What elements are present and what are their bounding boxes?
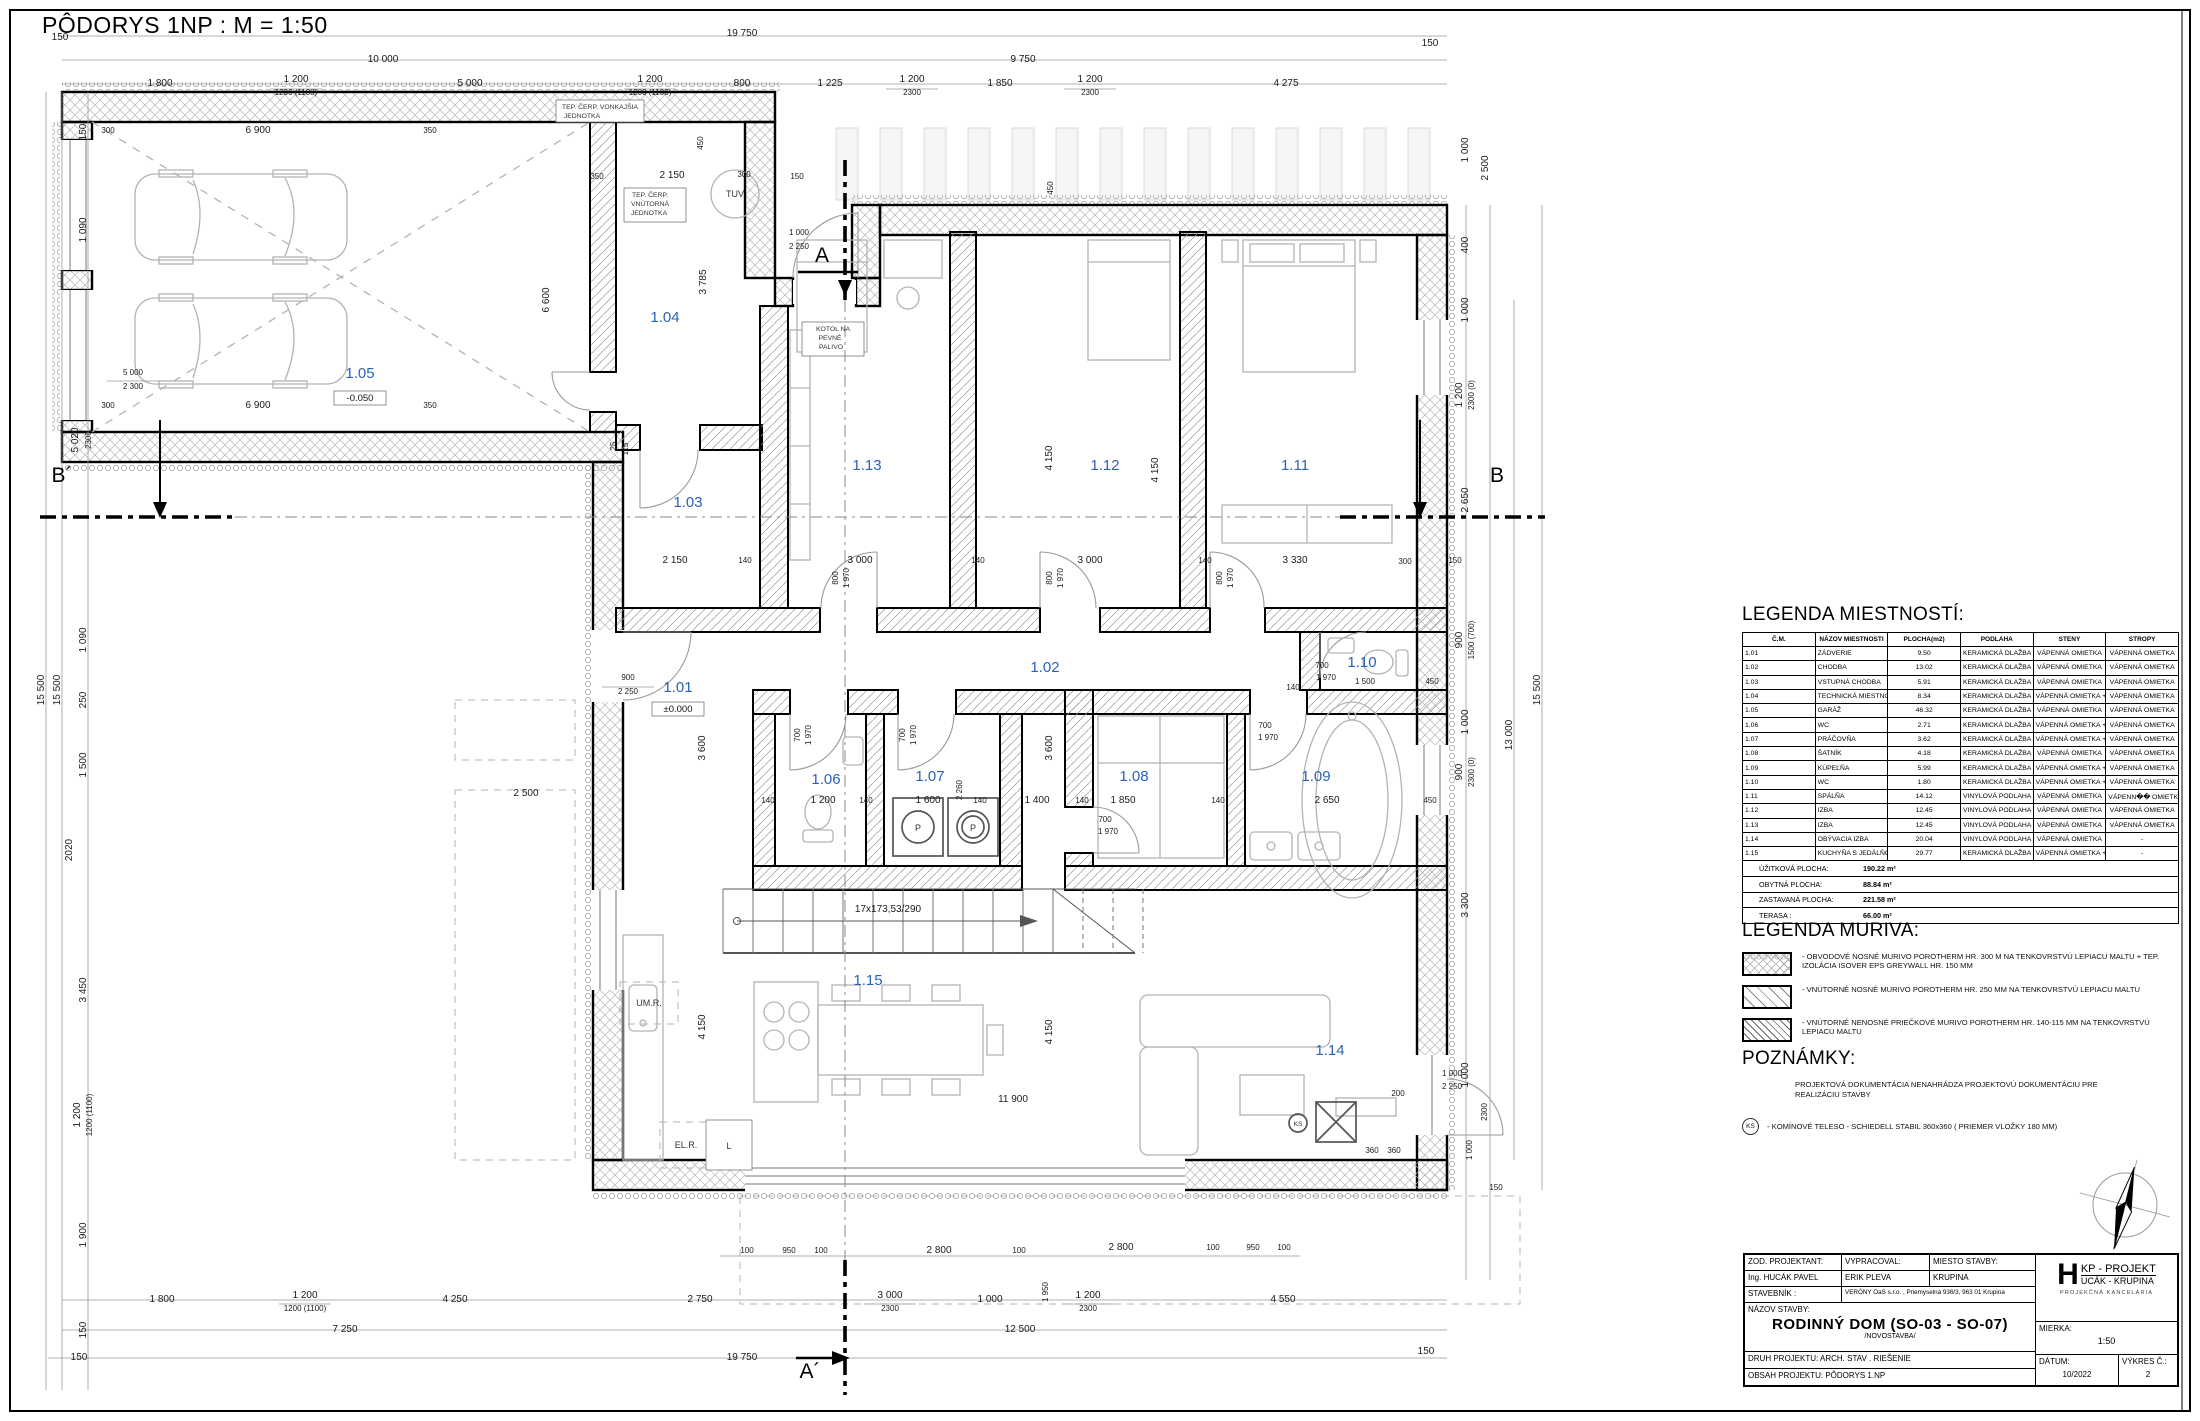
stavebnik-value: VERÓNY OaS s.r.o. , Priemyselná 936/3, 9… <box>1842 1287 2035 1302</box>
dim-label: 200 <box>1391 1089 1405 1098</box>
legend-cell: VÁPENNÁ OMIETKA <box>2106 661 2179 675</box>
legend-cell: KERAMICKÁ DLAŽBA <box>1960 704 2033 718</box>
dim-label: PALIVO <box>819 344 843 351</box>
dim-label: 140 <box>1198 556 1212 565</box>
partition-wall-swatch <box>1742 1018 1792 1042</box>
wall-legend-text: - OBVODOVÉ NOSNÉ MURIVO POROTHERM HR. 30… <box>1802 952 2174 976</box>
dim-label: 1 970 <box>842 567 851 588</box>
legend-cell: KERAMICKÁ DLAŽBA <box>1960 747 2033 761</box>
wall-legend-item: - VNÚTORNÉ NENOSNÉ PRIEČKOVÉ MURIVO PORO… <box>1742 1018 2180 1042</box>
zod-label: ZOD. PROJEKTANT: <box>1745 1255 1842 1270</box>
datum-value: 10/2022 <box>2039 1370 2115 1379</box>
dim-label: 360 <box>1387 1146 1401 1155</box>
dim-label: 250 <box>78 691 89 708</box>
legend-cell: OBÝVACIA IZBA <box>1815 832 1888 846</box>
legend-cell: 12.45 <box>1888 804 1961 818</box>
dim-label: 9 750 <box>1010 54 1035 65</box>
legend-row: 1.08ŠATNÍK4.18KERAMICKÁ DLAŽBAVÁPENNÁ OM… <box>1743 747 2179 761</box>
note-text: PROJEKTOVÁ DOKUMENTÁCIA NENAHRÁDZA PROJE… <box>1795 1080 2125 1100</box>
legend-header-cell: STENY <box>2033 633 2106 647</box>
legend-cell: 46.32 <box>1888 704 1961 718</box>
dim-label: 150 <box>790 172 804 181</box>
dim-label: 1 200 <box>283 74 308 85</box>
legend-row: 1.01ZÁDVERIE9.50KERAMICKÁ DLAŽBAVÁPENNÁ … <box>1743 647 2179 661</box>
stavebnik-label: STAVEBNÍK : <box>1745 1287 1842 1302</box>
dim-label: 2 250 <box>1442 1082 1463 1091</box>
room-label: 1.02 <box>1030 659 1059 676</box>
total-value: 190.22 m² <box>1863 864 1896 873</box>
legend-cell: - <box>2106 847 2179 861</box>
dim-label: 3 330 <box>1282 555 1307 566</box>
dim-label: 15 500 <box>36 674 47 705</box>
car <box>135 294 347 388</box>
dim-label: 300 <box>101 401 115 410</box>
dim-label: 2 250 <box>789 242 810 251</box>
dim-label: 1 200 <box>72 1102 83 1127</box>
dim-label: 2 500 <box>1480 155 1491 180</box>
dim-label: 450 <box>1423 796 1437 805</box>
dim-label: TEP. ČERP. VONKAJŠIA <box>562 102 639 111</box>
dim-label: 1 200 <box>1454 382 1465 407</box>
wall-legend-text: - VNÚTORNÉ NENOSNÉ PRIEČKOVÉ MURIVO PORO… <box>1802 1018 2174 1042</box>
project-name: RODINNÝ DOM (SO-03 - SO-07) <box>1745 1316 2035 1333</box>
legend-cell: VÁPENNÁ OMIETKA <box>2106 818 2179 832</box>
legend-header-row: Č.M.NÁZOV MIESTNOSTIPLOCHA(m2)PODLAHASTE… <box>1743 633 2179 647</box>
vyp-value: ERIK PLEVA <box>1842 1271 1930 1286</box>
dim-label: 1 800 <box>147 78 172 89</box>
legend-cell: 1.11 <box>1743 789 1816 803</box>
dim-label: 1 200 <box>810 795 835 806</box>
legend-cell: 4.18 <box>1888 747 1961 761</box>
dim-label: 4 150 <box>1044 445 1055 470</box>
room-label: 1.13 <box>852 457 881 474</box>
legend-cell: KERAMICKÁ DLAŽBA <box>1960 661 2033 675</box>
dim-label: 3 785 <box>698 269 709 294</box>
dim-label: 1 970 <box>1056 567 1065 588</box>
room-label: 1.04 <box>650 309 679 326</box>
legend-cell: KERAMICKÁ DLAŽBA <box>1960 847 2033 861</box>
zod-value: Ing. HUCÁK PAVEL <box>1745 1271 1842 1286</box>
dim-label: 2300 <box>881 1304 899 1313</box>
legend-cell: VÁPENNÁ OMIETKA <box>2106 761 2179 775</box>
dim-label: VNÚTORNÁ <box>631 199 669 208</box>
dim-label: 4 250 <box>442 1294 467 1305</box>
legend-cell: 2.71 <box>1888 718 1961 732</box>
legend-row: 1.13IZBA12.45VINYLOVÁ PODLAHAVÁPENNÁ OMI… <box>1743 818 2179 832</box>
legend-cell: 5.99 <box>1888 761 1961 775</box>
legend-cell: ŠATNÍK <box>1815 747 1888 761</box>
dim-label: -0.050 <box>347 393 374 404</box>
dim-label: 140 <box>738 556 752 565</box>
legend-cell: WC <box>1815 775 1888 789</box>
dim-label: 1 600 <box>915 795 940 806</box>
vyp-label: VYPRACOVAL: <box>1842 1255 1930 1270</box>
dim-label: 1 900 <box>78 1222 89 1247</box>
legend-cell: 1.12 <box>1743 804 1816 818</box>
legend-cell: 1.01 <box>1743 647 1816 661</box>
dim-label: 2 150 <box>659 170 684 181</box>
druh-projektu: DRUH PROJEKTU: ARCH. STAV . RIEŠENIE <box>1745 1352 2035 1368</box>
legend-cell: KERAMICKÁ DLAŽBA <box>1960 761 2033 775</box>
dim-label: 100 <box>740 1246 754 1255</box>
legend-totals: ÚŽITKOVÁ PLOCHA:190.22 m²OBYTNÁ PLOCHA:8… <box>1742 861 2179 923</box>
pergola-slats <box>836 128 1430 200</box>
dim-label: 150 <box>1448 556 1462 565</box>
dim-label: 1 800 <box>149 1294 174 1305</box>
room-label: 1.15 <box>853 972 882 989</box>
notes-body: PROJEKTOVÁ DOKUMENTÁCIA NENAHRÁDZA PROJE… <box>1795 1080 2125 1100</box>
dim-label: 1 200 <box>637 74 662 85</box>
dim-label: 1 000 <box>977 1294 1002 1305</box>
dim-label: 7 250 <box>332 1324 357 1335</box>
dim-label: 13 000 <box>1504 719 1515 750</box>
dim-label: UM.R. <box>636 998 662 1008</box>
dim-label: 350 <box>423 126 437 135</box>
dim-label: 360 <box>1365 1146 1379 1155</box>
legend-cell: VÁPENNÁ OMIETKA <box>2106 647 2179 661</box>
dim-label: 1 970 <box>1226 567 1235 588</box>
dim-label: 300 <box>737 170 751 179</box>
dim-label: 700 <box>1258 721 1272 730</box>
dim-label: 1 950 <box>1041 1281 1050 1302</box>
legend-header-cell: PLOCHA(m2) <box>1888 633 1961 647</box>
room-label: 1.14 <box>1315 1042 1344 1059</box>
total-value: 66.00 m² <box>1863 911 1892 920</box>
dim-label: 100 <box>1206 1243 1220 1252</box>
legend-cell: 3.62 <box>1888 732 1961 746</box>
dim-label: 12 500 <box>1005 1324 1036 1335</box>
legend-cell: 1.13 <box>1743 818 1816 832</box>
dim-label: 140 <box>1075 796 1089 805</box>
legend-cell: VÁPENNÁ OMIETKA <box>2033 818 2106 832</box>
legend-cell: VÁPENN�� OMIETKA <box>2106 789 2179 803</box>
room-label: 1.06 <box>811 771 840 788</box>
legend-cell: VSTUPNÁ CHODBA <box>1815 675 1888 689</box>
dim-label: 1 970 <box>1316 673 1337 682</box>
dim-label: 3 600 <box>1044 735 1055 760</box>
dim-label: 140 <box>971 556 985 565</box>
legend-cell: 9.50 <box>1888 647 1961 661</box>
room-label: 1.10 <box>1347 654 1376 671</box>
legend-cell: 1.15 <box>1743 847 1816 861</box>
legend-cell: SPÁLŇA <box>1815 789 1888 803</box>
legend-cell: KERAMICKÁ DLAŽBA <box>1960 675 2033 689</box>
legend-cell: KERAMICKÁ DLAŽBA <box>1960 718 2033 732</box>
dim-label: 950 <box>1246 1243 1260 1252</box>
legend-cell: WC <box>1815 718 1888 732</box>
dim-label: 1 200 <box>1077 74 1102 85</box>
legend-cell: 1.06 <box>1743 718 1816 732</box>
dim-label: 1 500 <box>1355 677 1376 686</box>
legend-row: 1.12IZBA12.45VINYLOVÁ PODLAHAVÁPENNÁ OMI… <box>1743 804 2179 818</box>
dim-label: 1 970 <box>1258 733 1279 742</box>
legend-cell: 29.77 <box>1888 847 1961 861</box>
dim-label: 2300 (0) <box>1467 757 1476 787</box>
legend-cell: VÁPENNÁ OMIETKA + OBKLAD <box>2033 761 2106 775</box>
room-label: 1.01 <box>663 679 692 696</box>
legend-rooms-title: LEGENDA MIESTNOSTÍ: <box>1742 604 1964 626</box>
dim-label: 19 750 <box>727 1352 758 1363</box>
logo-line1: KP - PROJEKT <box>2081 1263 2156 1276</box>
dim-label: 140 <box>1286 683 1300 692</box>
datum-label: DÁTUM: <box>2039 1357 2070 1366</box>
dim-label: 10 000 <box>368 54 399 65</box>
legend-row: 1.02CHODBA13.02KERAMICKÁ DLAŽBAVÁPENNÁ O… <box>1743 661 2179 675</box>
legend-cell: VÁPENNÁ OMIETKA <box>2106 732 2179 746</box>
section-marker-label: A <box>815 244 829 267</box>
dim-label: 800 <box>734 78 751 89</box>
legend-cell: 1.14 <box>1743 832 1816 846</box>
dim-label: 1 000 <box>1465 1139 1474 1160</box>
dim-label: 140 <box>1211 796 1225 805</box>
legend-cell: TECHNICKÁ MIESTNOSŤ <box>1815 689 1888 703</box>
legend-cell: VÁPENNÁ OMIETKA <box>2106 804 2179 818</box>
legend-cell: 20.04 <box>1888 832 1961 846</box>
dim-label: 1 000 <box>1460 297 1471 322</box>
dim-label: 1 970 <box>909 724 918 745</box>
dim-label: 2 250 <box>618 687 639 696</box>
dim-label: 300 <box>1398 557 1412 566</box>
dim-label: 700 <box>1315 661 1329 670</box>
dim-label: 1 000 <box>1460 137 1471 162</box>
dim-label: 2 750 <box>687 1294 712 1305</box>
legend-cell: 1.07 <box>1743 732 1816 746</box>
legend-cell: VÁPENNÁ OMIETKA <box>2106 675 2179 689</box>
total-label: ÚŽITKOVÁ PLOCHA: <box>1743 864 1863 873</box>
legend-rooms-heading: LEGENDA MIESTNOSTÍ: <box>1742 604 1964 626</box>
dim-label: 800 <box>1045 571 1054 585</box>
legend-cell: VÁPENNÁ OMIETKA + OBKLAD <box>2033 732 2106 746</box>
dim-label: 6 900 <box>245 400 270 411</box>
legend-header-cell: Č.M. <box>1743 633 1816 647</box>
dim-label: 2300 <box>1081 88 1099 97</box>
dim-label: TEP. ČERP. <box>632 190 668 199</box>
mierka-value: 1:50 <box>2039 1336 2174 1346</box>
dim-label: 800 <box>1215 571 1224 585</box>
dim-label: 25 <box>609 441 618 450</box>
dim-label: 800 <box>831 571 840 585</box>
legend-cell: KERAMICKÁ DLAŽBA <box>1960 775 2033 789</box>
ks-note-text: - KOMÍNOVÉ TELESO - SCHIEDELL STABIL 360… <box>1767 1122 2057 1131</box>
dim-label: PEVNÉ <box>818 333 842 342</box>
legend-cell: KUCHYŇA S JEDÁLŇOU <box>1815 847 1888 861</box>
room-label: 1.05 <box>345 365 374 382</box>
section-marker-label: B´ <box>52 464 73 487</box>
dim-label: 3 450 <box>78 977 89 1002</box>
dim-label: 5 020 <box>70 427 81 452</box>
legend-row: 1.15KUCHYŇA S JEDÁLŇOU29.77KERAMICKÁ DLA… <box>1743 847 2179 861</box>
legend-row: 1.07PRÁČOVŇA3.62KERAMICKÁ DLAŽBAVÁPENNÁ … <box>1743 732 2179 746</box>
total-label: ZASTAVANÁ PLOCHA: <box>1743 895 1863 904</box>
dim-label: JEDNOTKA <box>631 210 668 217</box>
dim-label: 450 <box>696 136 705 150</box>
legend-cell: VÁPENNÁ OMIETKA + OBKLAD <box>2033 775 2106 789</box>
dim-label: 4 150 <box>1150 457 1161 482</box>
legend-cell: 1.09 <box>1743 761 1816 775</box>
dim-label: 2 650 <box>1314 795 1339 806</box>
legend-cell: VINYLOVÁ PODLAHA <box>1960 789 2033 803</box>
dim-label: 350 <box>423 401 437 410</box>
dim-label: 3 000 <box>847 555 872 566</box>
wall-legend-item: - OBVODOVÉ NOSNÉ MURIVO POROTHERM HR. 30… <box>1742 952 2180 976</box>
total-label: TERASA : <box>1743 911 1863 920</box>
dim-label: 19 750 <box>727 28 758 39</box>
dim-label: 2300 <box>1079 1304 1097 1313</box>
room-label: 1.09 <box>1301 768 1330 785</box>
dim-label: 3 000 <box>1077 555 1102 566</box>
legend-row: 1.06WC2.71KERAMICKÁ DLAŽBAVÁPENNÁ OMIETK… <box>1743 718 2179 732</box>
legend-cell: 5.91 <box>1888 675 1961 689</box>
legend-rooms-table: Č.M.NÁZOV MIESTNOSTIPLOCHA(m2)PODLAHASTE… <box>1742 632 2179 861</box>
dim-label: 900 <box>1454 631 1465 648</box>
page-title: PÔDORYS 1NP : M = 1:50 <box>42 12 328 39</box>
dim-label: 2 500 <box>513 788 538 799</box>
dim-label: 1 500 <box>78 752 89 777</box>
legend-cell: VINYLOVÁ PODLAHA <box>1960 818 2033 832</box>
exterior-wall-swatch <box>1742 952 1792 976</box>
doors <box>552 212 1503 1135</box>
dim-label: 15 500 <box>1532 674 1543 705</box>
dim-label: 1 200 <box>1075 1290 1100 1301</box>
dim-label: 2300 (0) <box>1467 380 1476 410</box>
obsah-projektu: OBSAH PROJEKTU: PÔDORYS 1.NP <box>1745 1369 2035 1385</box>
section-marker-label: B <box>1490 464 1504 487</box>
dim-label: 1 000 <box>1460 709 1471 734</box>
legend-cell: PRÁČOVŇA <box>1815 732 1888 746</box>
wall-legend-item: - VNÚTORNÉ NOSNÉ MURIVO POROTHERM HR. 25… <box>1742 985 2180 1009</box>
legend-walls: - OBVODOVÉ NOSNÉ MURIVO POROTHERM HR. 30… <box>1742 952 2180 1051</box>
dim-label: 140 <box>859 796 873 805</box>
legend-cell: 1.80 <box>1888 775 1961 789</box>
dim-label: 150 <box>71 1352 88 1363</box>
dim-label: 2 800 <box>1108 1242 1133 1253</box>
legend-cell: VINYLOVÁ PODLAHA <box>1960 804 2033 818</box>
dim-label: 3 300 <box>1460 892 1471 917</box>
wall-legend-text: - VNÚTORNÉ NOSNÉ MURIVO POROTHERM HR. 25… <box>1802 985 2174 1009</box>
dim-label: 150 <box>1418 1346 1435 1357</box>
dim-label: 400 <box>1460 236 1471 253</box>
dim-label: P <box>915 823 921 833</box>
legend-cell: VÁPENNÁ OMIETKA + OBKLAD <box>2033 718 2106 732</box>
logo-h: H <box>2057 1263 2079 1287</box>
legend-cell: VÁPENNÁ OMIETKA + OBKLAD <box>2033 847 2106 861</box>
legend-cell: 1.02 <box>1743 661 1816 675</box>
dim-label: 1 200 <box>899 74 924 85</box>
dim-label: 1200 (1100) <box>275 88 318 97</box>
legend-cell: IZBA <box>1815 818 1888 832</box>
dim-label: 150 <box>78 1321 89 1338</box>
dim-label: 140 <box>973 796 987 805</box>
legend-cell: VÁPENNÁ OMIETKA <box>2033 804 2106 818</box>
dim-label: 1200 (1100) <box>284 1304 327 1313</box>
legend-header-cell: STROPY <box>2106 633 2179 647</box>
legend-cell: 14.12 <box>1888 789 1961 803</box>
legend-cell: KÚPEĽŇA <box>1815 761 1888 775</box>
logo-line2: UCÁK - KRUPINA <box>2081 1276 2156 1286</box>
dim-label: 450 <box>1425 677 1439 686</box>
legend-cell: VÁPENNÁ OMIETKA <box>2106 775 2179 789</box>
dim-label: 2300 <box>903 88 921 97</box>
dim-label: L <box>726 1141 731 1151</box>
legend-row: 1.05GARÁŽ46.32KERAMICKÁ DLAŽBAVÁPENNÁ OM… <box>1743 704 2179 718</box>
legend-row: 1.10WC1.80KERAMICKÁ DLAŽBAVÁPENNÁ OMIETK… <box>1743 775 2179 789</box>
vykres-label: VÝKRES Č.: <box>2122 1357 2167 1366</box>
dim-label: 2020 <box>64 838 75 861</box>
dim-label: EL.R. <box>675 1140 698 1150</box>
legend-cell: VÁPENNÁ OMIETKA <box>2033 661 2106 675</box>
legend-cell: 8.34 <box>1888 689 1961 703</box>
legend-total-row: ÚŽITKOVÁ PLOCHA:190.22 m² <box>1742 861 2179 877</box>
dim-label: 2300 <box>1480 1103 1489 1121</box>
legend-cell: VÁPENNÁ OMIETKA <box>2033 704 2106 718</box>
dim-label: 1 400 <box>1024 795 1049 806</box>
room-label: 1.08 <box>1119 768 1148 785</box>
dim-label: 3 000 <box>877 1290 902 1301</box>
dim-label: 4 550 <box>1270 1294 1295 1305</box>
total-label: OBYTNÁ PLOCHA: <box>1743 880 1863 889</box>
legend-cell: 12.45 <box>1888 818 1961 832</box>
dim-label: 6 600 <box>541 287 552 312</box>
dim-label: 100 <box>1277 1243 1291 1252</box>
legend-cell: VÁPENNÁ OMIETKA <box>2033 675 2106 689</box>
legend-cell: VÁPENNÁ OMIETKA <box>2033 747 2106 761</box>
dim-label: 350 <box>590 172 604 181</box>
legend-row: 1.09KÚPEĽŇA5.99KERAMICKÁ DLAŽBAVÁPENNÁ O… <box>1743 761 2179 775</box>
dim-label: 4 275 <box>1273 78 1298 89</box>
dim-label: 2300 <box>84 431 93 449</box>
total-value: 88.84 m² <box>1863 880 1892 889</box>
dim-label: 115 <box>621 442 630 455</box>
dim-label: 1 970 <box>804 724 813 745</box>
dim-label: 1 000 <box>789 228 810 237</box>
company-logo: H KP - PROJEKT UCÁK - KRUPINA <box>2036 1255 2177 1287</box>
dim-label: 150 <box>78 123 89 140</box>
dim-label: 1200 (1100) <box>629 88 672 97</box>
dim-label: 2 800 <box>926 1245 951 1256</box>
legend-walls-heading: LEGENDA MURIVA: <box>1742 920 1919 942</box>
notes-title: POZNÁMKY: <box>1742 1048 1856 1070</box>
legend-cell: VÁPENNÁ OMIETKA <box>2033 789 2106 803</box>
legend-cell: KERAMICKÁ DLAŽBA <box>1960 689 2033 703</box>
section-marker-label: A´ <box>800 1360 821 1383</box>
legend-row: 1.04TECHNICKÁ MIESTNOSŤ8.34KERAMICKÁ DLA… <box>1743 689 2179 703</box>
project-name-sub: /NOVOSTAVBA/ <box>1745 1333 2035 1340</box>
dim-label: JEDNOTKA <box>564 113 601 120</box>
load-bearing-wall-swatch <box>1742 985 1792 1009</box>
north-compass <box>2080 1160 2170 1251</box>
dim-label: 100 <box>814 1246 828 1255</box>
legend-cell: IZBA <box>1815 804 1888 818</box>
legend-cell: - <box>2106 832 2179 846</box>
legend-walls-title: LEGENDA MURIVA: <box>1742 920 1919 942</box>
legend-total-row: ZASTAVANÁ PLOCHA:221.58 m² <box>1742 893 2179 909</box>
legend-cell: 1.04 <box>1743 689 1816 703</box>
legend-cell: VÁPENNÁ OMIETKA <box>2106 718 2179 732</box>
vykres-value: 2 <box>2122 1370 2174 1379</box>
dim-label: 11 900 <box>998 1094 1028 1105</box>
miesto-label: MIESTO STAVBY: <box>1930 1255 2035 1270</box>
stairs <box>723 889 1143 953</box>
dim-label: 700 <box>793 728 802 742</box>
appliances <box>893 798 1356 1142</box>
dim-label: 150 <box>1489 1183 1503 1192</box>
dim-label: 1 090 <box>78 217 89 242</box>
dim-label: 2 150 <box>662 555 687 566</box>
miesto-value: KRUPINA <box>1930 1271 2035 1286</box>
dim-label: 4 150 <box>1044 1019 1055 1044</box>
dim-label: 700 <box>1098 815 1112 824</box>
legend-total-row: OBYTNÁ PLOCHA:88.84 m² <box>1742 877 2179 893</box>
